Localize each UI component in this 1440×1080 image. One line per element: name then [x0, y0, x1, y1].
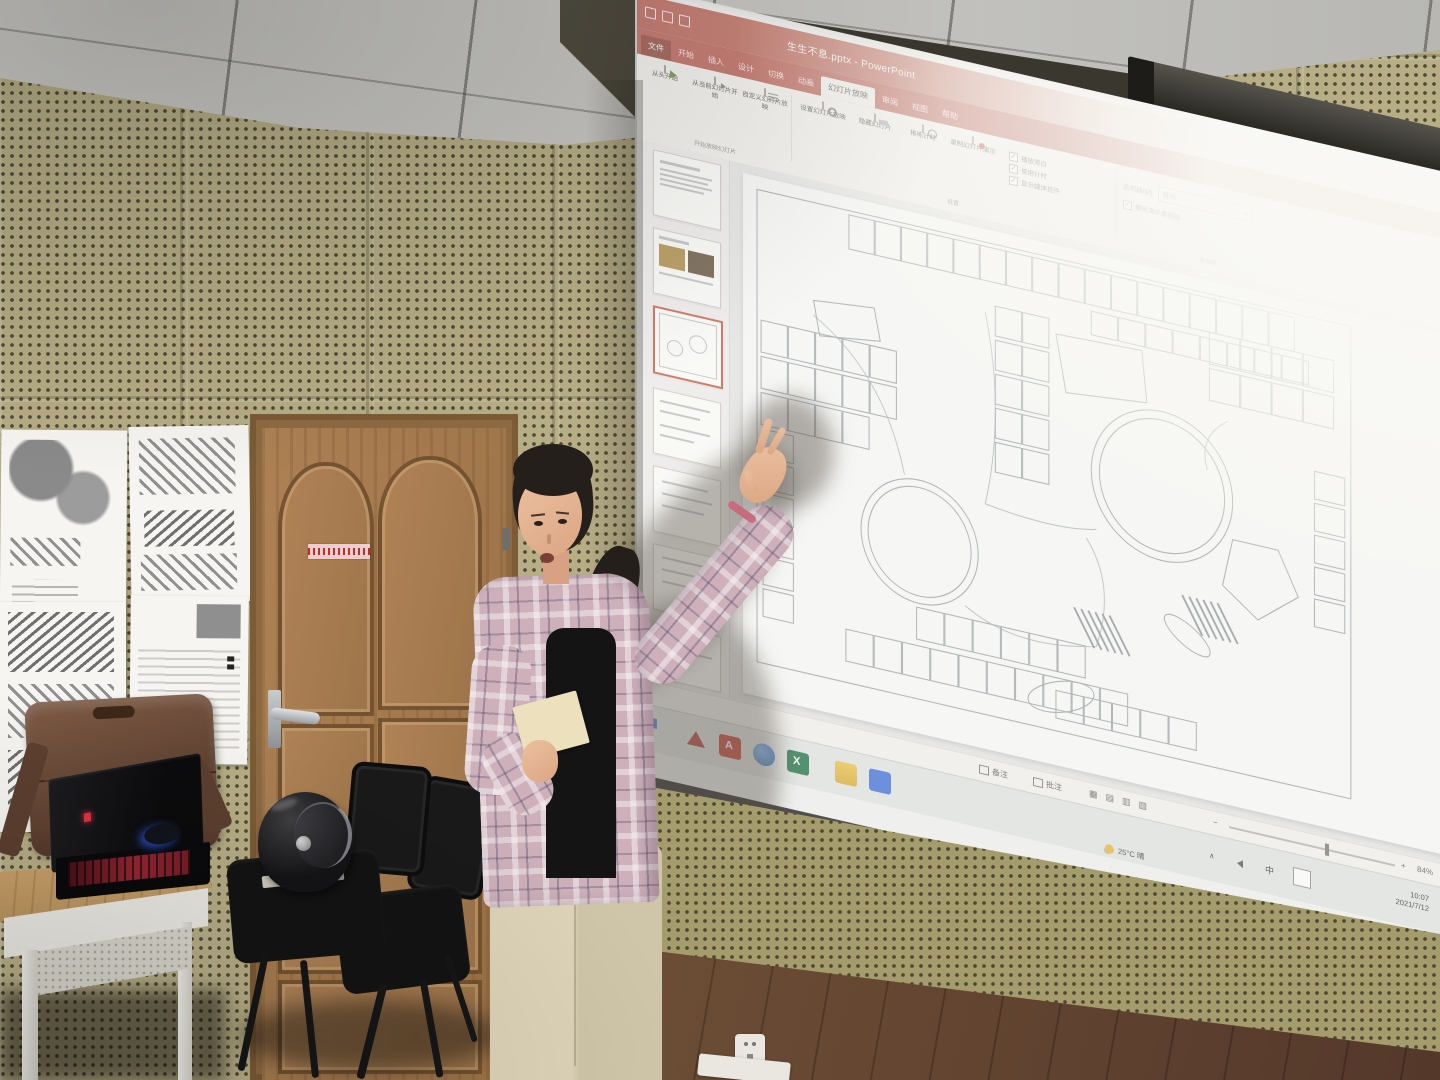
ribbon-separator	[791, 95, 792, 161]
monitor-label: 监视器(M):	[1123, 180, 1154, 197]
save-icon[interactable]	[645, 6, 656, 20]
red-backlit-keyboard	[68, 850, 190, 887]
notes-icon	[979, 764, 989, 775]
quick-access-toolbar[interactable]	[645, 6, 690, 27]
rehearse-clock-icon	[922, 124, 924, 133]
rehearse-timings-button[interactable]: 排练计时	[901, 120, 945, 145]
laptop-logo-light	[84, 812, 91, 822]
nose-shadow	[547, 534, 551, 544]
from-current-slide-button[interactable]: 从当前幻灯片开始	[691, 72, 739, 106]
folder-icon[interactable]	[835, 760, 857, 787]
excel-icon[interactable]	[787, 749, 809, 776]
axon-drawing	[139, 437, 236, 495]
setup-slideshow-button[interactable]: 设置幻灯片放映	[797, 96, 849, 123]
checkbox-icon: ✓	[1123, 199, 1132, 210]
comments-button[interactable]: 批注	[1033, 776, 1062, 794]
slide-thumbnail-3-selected[interactable]	[653, 305, 723, 389]
checkbox-icon: ✓	[1009, 163, 1018, 174]
zoom-in-button[interactable]: +	[1401, 861, 1406, 871]
poster-axonometric-top	[128, 425, 251, 603]
poster-plan-drawing	[8, 440, 115, 537]
zoom-percent[interactable]: 84%	[1417, 865, 1433, 878]
axon-drawing	[141, 553, 238, 591]
notes-button[interactable]: 备注	[979, 763, 1008, 781]
helmet-visor	[294, 802, 352, 868]
eye	[534, 521, 543, 526]
chevron-down-icon: ▾	[1245, 209, 1249, 218]
undo-icon[interactable]	[662, 10, 673, 24]
door-hinge	[502, 528, 510, 550]
slide-thumbnail-4[interactable]	[653, 387, 721, 469]
play-from-current-icon	[714, 76, 716, 85]
bag-handle-slot	[92, 705, 135, 719]
zoom-slider-knob[interactable]	[1325, 843, 1329, 856]
redo-icon[interactable]	[679, 14, 690, 28]
blue-app-icon[interactable]	[869, 768, 891, 795]
play-from-start-icon	[664, 65, 666, 74]
left-hand	[522, 740, 558, 782]
tray-chevron-icon[interactable]: ∧	[1209, 851, 1215, 898]
poster-detail-drawing	[10, 538, 80, 567]
dark-mass-drawing	[196, 604, 240, 638]
setup-show-icon	[822, 101, 824, 110]
legend-square	[227, 656, 234, 661]
motorcycle-helmet	[258, 792, 352, 892]
open-mouth	[540, 553, 554, 563]
record-icon	[972, 136, 974, 145]
legend-square	[227, 664, 234, 669]
hide-slide-icon	[874, 113, 876, 122]
hide-slide-button[interactable]: 隐藏幻灯片	[851, 109, 899, 135]
slideshow-option-checkboxes: ✓ 播放旁白 ✓ 使用计时 ✓ 显示媒体控件	[1009, 149, 1060, 197]
checkbox-icon: ✓	[1009, 175, 1018, 186]
record-slideshow-button[interactable]: 录制幻灯片演示	[947, 131, 999, 158]
weather-widget[interactable]: 25°C 晴	[1105, 825, 1144, 880]
zoom-out-button[interactable]: −	[1213, 817, 1218, 827]
checkbox-icon: ✓	[1009, 151, 1018, 162]
custom-show-icon	[764, 88, 766, 97]
from-beginning-button[interactable]: 从头开始	[641, 60, 689, 86]
comments-icon	[1033, 777, 1043, 788]
axon-drawing	[144, 509, 235, 547]
weather-sun-icon	[1105, 843, 1114, 854]
door-sign-red-text	[308, 544, 370, 559]
eye	[558, 519, 567, 524]
hair-fringe	[513, 444, 593, 496]
axon-drawing	[8, 612, 114, 672]
slide-thumbnail-2[interactable]	[653, 227, 721, 309]
door-panel	[278, 462, 374, 716]
slide-thumbnail-1[interactable]	[653, 149, 721, 231]
helmet-knob	[296, 836, 311, 851]
classroom-presentation-photo: 生生不息.pptx - PowerPoint 文件 开始 插入 设计 切换 动画…	[0, 0, 1440, 1080]
ribbon-separator	[1115, 170, 1116, 236]
door-panel	[378, 456, 482, 710]
custom-slideshow-button[interactable]: 自定义幻灯片放映	[741, 83, 789, 117]
